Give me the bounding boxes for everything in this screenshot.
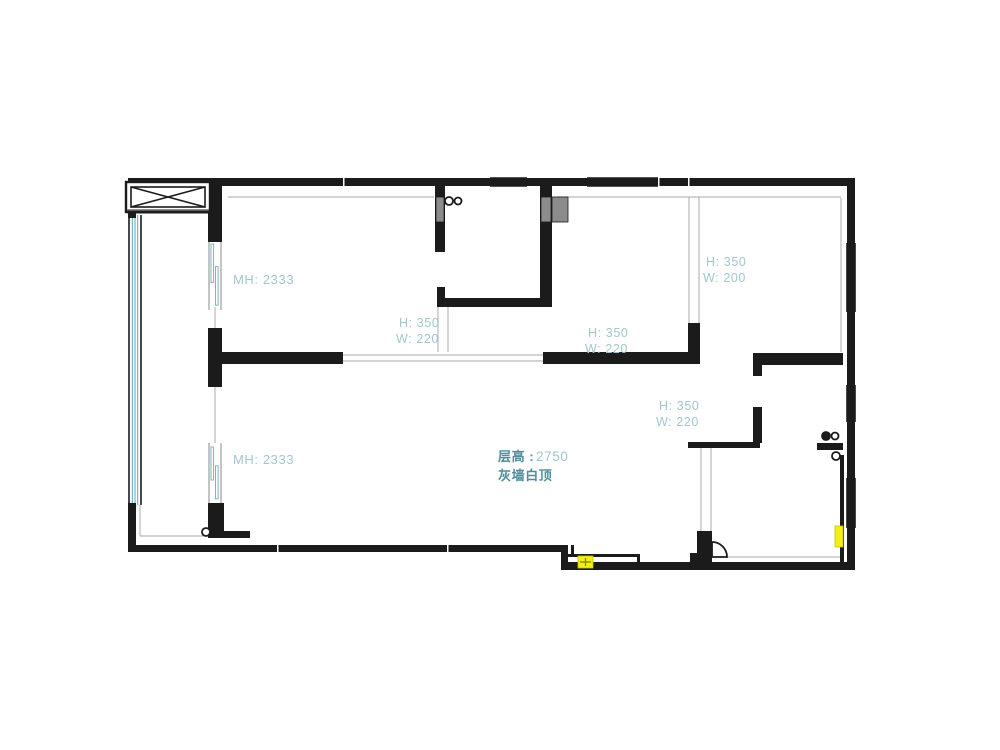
plan-label: W: 220 — [656, 415, 699, 429]
plan-label: 层高 : — [498, 449, 534, 464]
wall — [753, 353, 762, 376]
plan-label: H: 350 — [399, 316, 439, 330]
wall-seam — [688, 178, 690, 188]
door-swing-arc — [712, 542, 727, 557]
wall — [690, 553, 697, 570]
plan-label: H: 350 — [588, 326, 628, 340]
wall — [753, 407, 762, 443]
wall — [128, 178, 855, 186]
wall — [128, 503, 136, 552]
door-hinge-circle — [202, 528, 210, 536]
wall — [222, 352, 343, 364]
wall — [208, 328, 222, 387]
wall — [571, 545, 574, 556]
plan-label: 灰墙白顶 — [498, 468, 552, 483]
wall-gray-cap — [436, 197, 444, 222]
wall — [847, 178, 855, 570]
wall — [753, 353, 843, 365]
wall — [224, 531, 250, 538]
wall — [637, 554, 640, 566]
wall-seam — [277, 545, 279, 552]
plan-label: H: 350 — [659, 399, 699, 413]
wall — [697, 531, 712, 570]
plan-label: W: 200 — [703, 271, 746, 285]
door-hinge-circle — [445, 197, 453, 205]
wall — [437, 298, 552, 307]
door-hinge-circle — [832, 433, 839, 440]
wall-gray-cap — [552, 197, 568, 222]
wall-seam — [658, 178, 660, 188]
plan-label: MH: 2333 — [233, 452, 294, 467]
wall — [437, 287, 445, 307]
wall-seam — [447, 545, 449, 552]
wall — [128, 545, 568, 552]
plan-label: W: 220 — [585, 342, 628, 356]
door-hinge-circle — [832, 452, 840, 460]
wall — [688, 323, 700, 354]
plan-label: H: 350 — [706, 255, 746, 269]
plan-label: 2750 — [536, 449, 568, 464]
wall-gray-cap — [541, 197, 551, 222]
floor-plan-drawing: MH: 2333H: 350W: 220H: 350W: 200H: 350W:… — [0, 0, 1000, 750]
wall — [688, 442, 760, 448]
plan-label: W: 220 — [396, 332, 439, 346]
door-hinge-circle — [455, 198, 462, 205]
wall — [817, 443, 843, 450]
door-hinge-circle — [822, 432, 830, 440]
wall-seam — [343, 178, 345, 194]
floorplan-page: MH: 2333H: 350W: 220H: 350W: 200H: 350W:… — [0, 0, 1000, 750]
plan-label: MH: 2333 — [233, 272, 294, 287]
highlight-marker — [835, 526, 843, 547]
